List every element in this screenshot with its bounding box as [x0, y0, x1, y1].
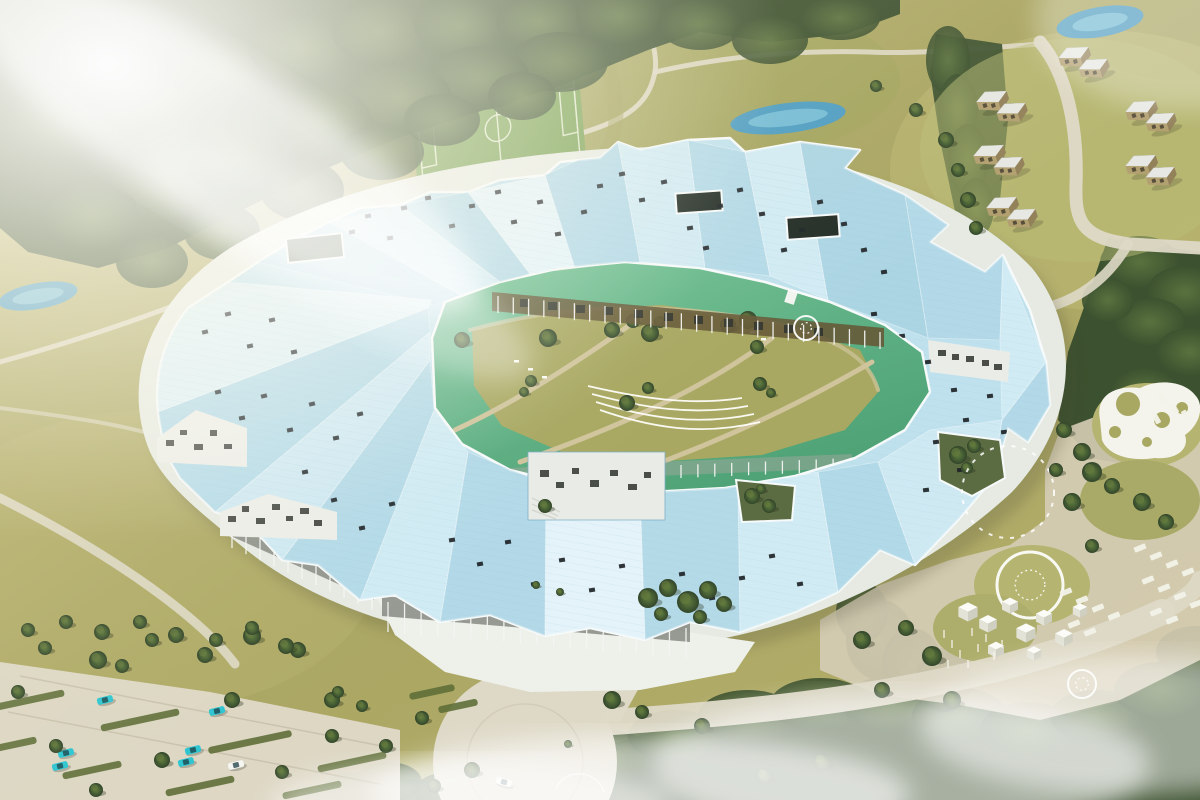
- aerial-campus-rendering: [0, 0, 1200, 800]
- rendering-canvas: [0, 0, 1200, 800]
- atmosphere: [0, 0, 1200, 800]
